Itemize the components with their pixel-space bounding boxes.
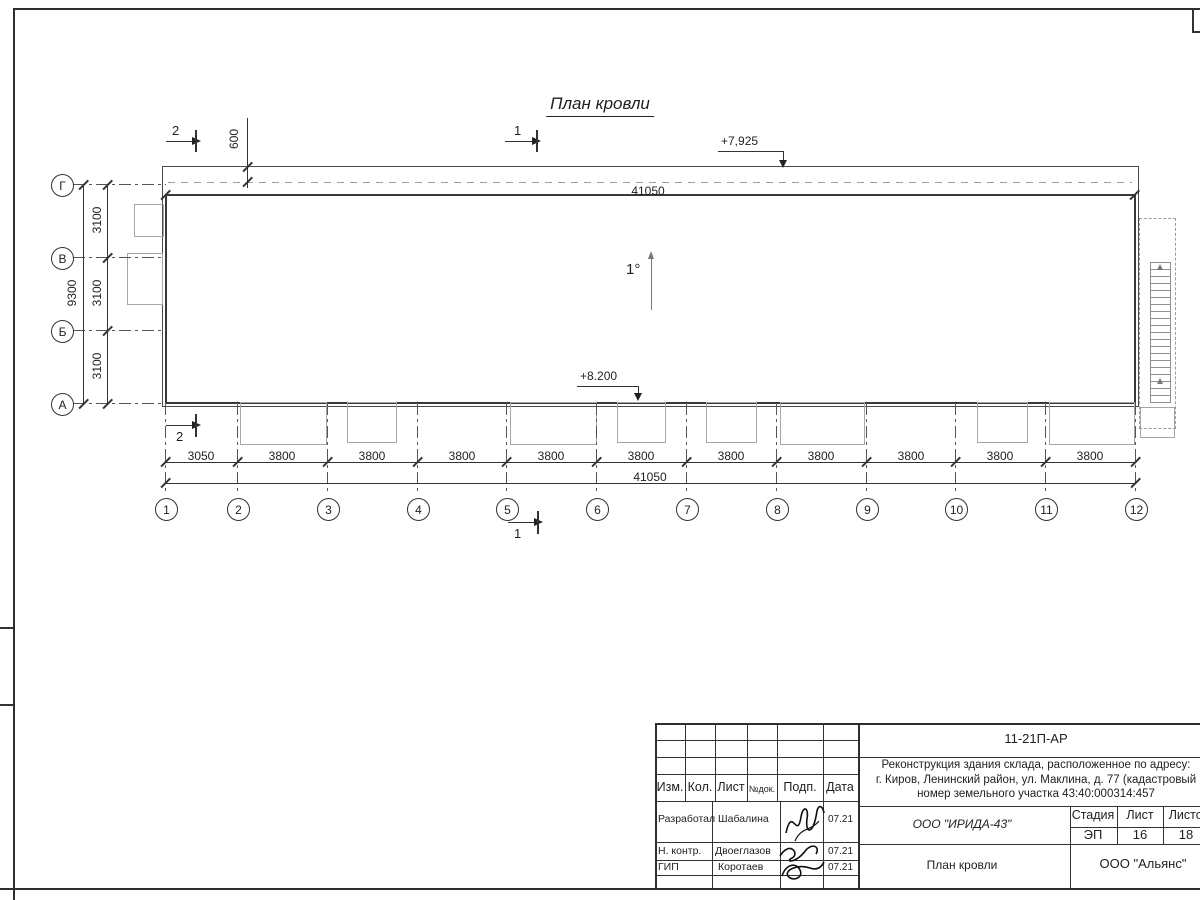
section-label: 1 [514, 123, 521, 138]
titleblock-grid-line [655, 801, 858, 802]
axis-line [1135, 403, 1136, 491]
frame-margin-mark [0, 627, 13, 629]
canopy [617, 402, 666, 443]
dimension-label: 3800 [628, 449, 655, 463]
dimension-label: 9300 [65, 271, 79, 315]
titleblock-date: 07.21 [828, 814, 853, 825]
dimension-label: 3800 [449, 449, 476, 463]
titleblock-role: ГИП [658, 861, 679, 873]
titleblock-grid-line [823, 723, 824, 801]
stair-direction-arrow-icon [1157, 378, 1163, 384]
axis-line [506, 403, 507, 491]
roof-element [134, 204, 164, 237]
drawing-sheet: План кровли 41050 600 1° +7,925 +8.200 2… [0, 0, 1200, 900]
axis-line [327, 403, 328, 491]
dimension-label: 3100 [90, 344, 104, 388]
elevation-leader-line [577, 386, 639, 387]
canopy [510, 402, 597, 445]
frame-top-line [13, 8, 1200, 10]
section-arrow-line [505, 141, 532, 142]
titleblock-sheet-number: 16 [1133, 827, 1147, 842]
dimension-label: 3800 [359, 449, 386, 463]
axis-circle: 4 [407, 498, 430, 521]
frame-bottom-line [0, 888, 1200, 890]
axis-line [73, 330, 166, 331]
titleblock-border [655, 723, 657, 888]
elevation-label: +8.200 [580, 369, 617, 383]
titleblock-grid-line [777, 723, 778, 801]
section-arrow-line [508, 522, 534, 523]
titleblock-grid-line [715, 723, 716, 801]
slope-label: 1° [626, 261, 640, 278]
dimension-label: 3050 [188, 449, 215, 463]
titleblock-role: Н. контр. [658, 845, 701, 857]
axis-circle: Г [51, 174, 74, 197]
roof-hidden-wall-line [168, 182, 1132, 183]
dimension-line [83, 185, 84, 404]
canopy [1049, 402, 1135, 445]
titleblock-stage-header: Лист [1126, 808, 1153, 822]
titleblock-org: ООО "ИРИДА-43" [913, 817, 1012, 831]
axis-circle: 9 [856, 498, 879, 521]
axis-circle: 8 [766, 498, 789, 521]
axis-line [73, 257, 166, 258]
axis-circle: 6 [586, 498, 609, 521]
titleblock-role: Разработал [658, 813, 715, 825]
titleblock-grid-line [1117, 806, 1118, 844]
roof-element [127, 253, 163, 305]
dimension-label: 3100 [90, 198, 104, 242]
frame-corner-cell-line [1192, 31, 1200, 33]
elevation-arrow-icon [634, 393, 642, 401]
axis-line [237, 403, 238, 491]
titleblock-border [655, 723, 1200, 725]
axis-line [73, 184, 166, 185]
slope-arrow-icon [648, 251, 654, 259]
titleblock-name: Коротаев [718, 861, 763, 873]
axis-circle: В [51, 247, 74, 270]
axis-line [417, 403, 418, 491]
axis-line [596, 403, 597, 491]
axis-circle: 11 [1035, 498, 1058, 521]
titleblock-doc-number: 11-21П-АР [1004, 731, 1067, 746]
frame-corner-cell-line [1192, 9, 1194, 32]
elevation-leader-line [718, 151, 784, 152]
titleblock-col-header: Изм. [657, 780, 684, 794]
dimension-label: 3800 [538, 449, 565, 463]
titleblock-sheet-count: 18 [1179, 827, 1193, 842]
section-arrow-icon [192, 421, 201, 429]
axis-circle: 2 [227, 498, 250, 521]
section-label: 2 [172, 123, 179, 138]
section-mark-bar [195, 130, 197, 152]
axis-circle: А [51, 393, 74, 416]
canopy [977, 402, 1028, 443]
axis-circle: Б [51, 320, 74, 343]
axis-line [776, 403, 777, 491]
axis-line [73, 403, 166, 404]
dimension-line [107, 185, 108, 404]
titleblock-name: Шабалина [718, 813, 769, 825]
slope-arrow-line [651, 258, 652, 310]
canopy [240, 402, 327, 445]
stair-direction-arrow-icon [1157, 264, 1163, 270]
section-mark-bar [537, 511, 539, 534]
titleblock-project-description: Реконструкция здания склада, расположенн… [860, 758, 1200, 802]
frame-margin-mark [0, 704, 13, 706]
axis-circle: 12 [1125, 498, 1148, 521]
titleblock-col-header: №док. [749, 784, 775, 794]
section-mark-bar [195, 414, 197, 437]
canopy [780, 402, 865, 445]
section-arrow-icon [534, 518, 543, 526]
titleblock-grid-line [1163, 806, 1164, 844]
section-arrow-line [166, 425, 192, 426]
axis-circle: 3 [317, 498, 340, 521]
axis-line [686, 403, 687, 491]
titleblock-col-header: Подп. [783, 780, 816, 794]
titleblock-grid-line [655, 875, 858, 876]
dimension-line [247, 118, 248, 188]
dimension-label: 3800 [808, 449, 835, 463]
dimension-label: 3800 [987, 449, 1014, 463]
section-label: 2 [176, 429, 183, 444]
dimension-label: 3800 [898, 449, 925, 463]
titleblock-col-header: Дата [826, 780, 854, 794]
drawing-title: План кровли [546, 94, 654, 117]
titleblock-sheet-name: План кровли [927, 858, 998, 872]
axis-line [1045, 403, 1046, 491]
dimension-label: 3100 [90, 271, 104, 315]
titleblock-stage-header: Стадия [1072, 808, 1115, 822]
axis-line [165, 403, 166, 491]
titleblock-grid-line [858, 806, 1200, 807]
titleblock-grid-line [685, 723, 686, 801]
canopy [706, 402, 757, 443]
project-line: г. Киров, Ленинский район, ул. Маклина, … [860, 773, 1200, 788]
titleblock-date: 07.21 [828, 862, 853, 873]
titleblock-col-header: Кол. [688, 780, 713, 794]
dimension-label: 3800 [269, 449, 296, 463]
axis-line [955, 403, 956, 491]
titleblock-grid-line [655, 842, 858, 843]
dimension-label: 3800 [718, 449, 745, 463]
axis-circle: 7 [676, 498, 699, 521]
section-arrow-line [166, 141, 192, 142]
axis-circle: 10 [945, 498, 968, 521]
titleblock-grid-line [858, 844, 1200, 845]
section-arrow-icon [192, 137, 201, 145]
axis-circle: 5 [496, 498, 519, 521]
project-line: Реконструкция здания склада, расположенн… [860, 758, 1200, 773]
titleblock-company: ООО "Альянс" [1100, 856, 1187, 871]
project-line: номер земельного участка 43:40:000314:45… [860, 787, 1200, 802]
dimension-label: 3800 [1077, 449, 1104, 463]
titleblock-stage-value: ЭП [1084, 827, 1103, 842]
elevation-label: +7,925 [721, 134, 758, 148]
dimension-label: 41050 [633, 470, 666, 484]
dimension-label: 41050 [631, 184, 664, 198]
titleblock-date: 07.21 [828, 846, 853, 857]
titleblock-name: Двоеглазов [715, 845, 771, 857]
elevation-arrow-icon [779, 160, 787, 168]
axis-circle: 1 [155, 498, 178, 521]
axis-line [866, 403, 867, 491]
section-label: 1 [514, 526, 521, 541]
frame-left-line [13, 8, 15, 900]
titleblock-col-header: Лист [717, 780, 744, 794]
dimension-label: 600 [227, 117, 241, 161]
section-mark-bar [536, 130, 538, 152]
titleblock-stage-header: Листов [1169, 808, 1200, 822]
canopy [347, 402, 397, 443]
signature-icon [776, 838, 826, 884]
